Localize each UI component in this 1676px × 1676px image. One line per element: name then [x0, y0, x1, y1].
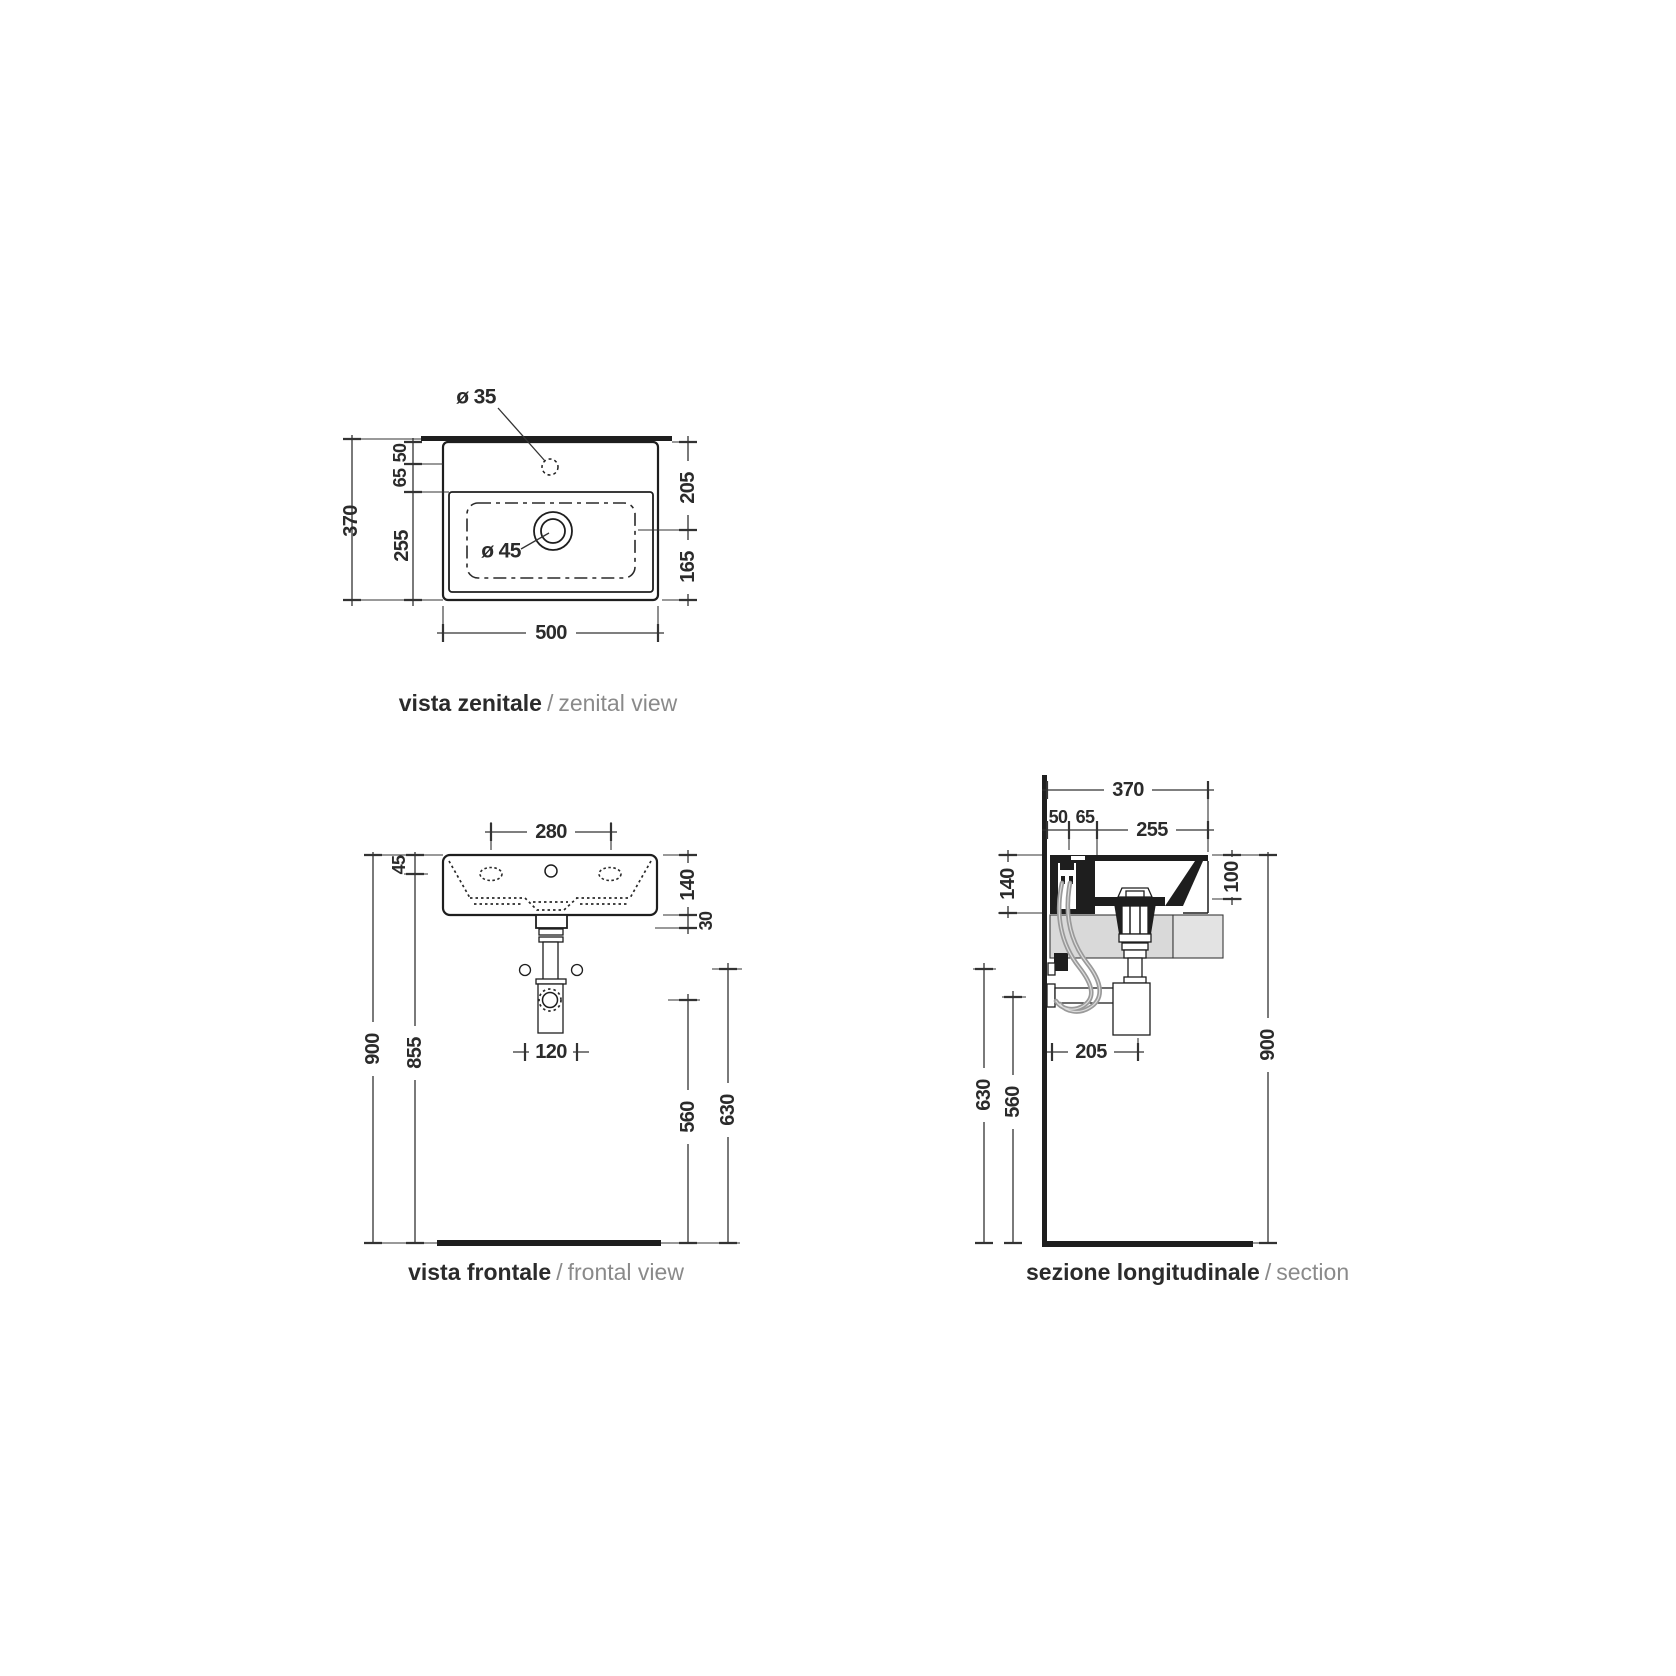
section-view-title: sezione longitudinale/section: [1026, 1259, 1326, 1286]
wall-line-section: [1042, 775, 1047, 1247]
floor-front: [367, 1240, 740, 1246]
dim-faucet-spacing: 280: [485, 821, 617, 850]
section-title-english: section: [1276, 1259, 1349, 1285]
dim-height-total-section: 900: [1253, 852, 1280, 1243]
title-separator: /: [547, 690, 553, 716]
right-fixing-hole: [572, 965, 583, 976]
basin-outline-front: [443, 855, 657, 915]
dim-label-65-section: 65: [1076, 807, 1095, 827]
wall-pipe-flange: [1047, 984, 1055, 1007]
dim-fixing-spacing: 120: [513, 1041, 589, 1063]
bottle-trap: [538, 984, 563, 1033]
dim-section-back-offsets: 50 65 255: [1042, 807, 1214, 855]
dim-zenital-width: 500: [437, 606, 664, 644]
dim-label-50-section: 50: [1049, 807, 1068, 827]
dim-label-140-section: 140: [997, 868, 1019, 900]
dim-label-100: 100: [1221, 861, 1243, 893]
dim-label-500: 500: [535, 622, 567, 644]
technical-drawing: ø 35 ø 45 370 50 65 255: [0, 0, 1676, 1676]
dim-height-drain: 630: [712, 963, 742, 1243]
dim-label-165: 165: [677, 551, 699, 583]
spec-sheet-page: ø 35 ø 45 370 50 65 255: [0, 0, 1676, 1676]
dim-label-30: 30: [696, 911, 716, 930]
cabinet-block: [1173, 915, 1223, 958]
dim-label-280: 280: [535, 821, 567, 843]
left-fixing-hole: [520, 965, 531, 976]
zenital-view-title: vista zenitale/zenital view: [388, 690, 688, 717]
frontal-title-english: frontal view: [568, 1259, 684, 1285]
dim-label-630-section: 630: [973, 1079, 995, 1111]
section-view: 370 50 65 255: [972, 775, 1280, 1247]
dim-label-140: 140: [677, 869, 699, 901]
dim-label-855: 855: [404, 1037, 426, 1069]
title-separator: /: [1265, 1259, 1271, 1285]
dim-basin-height-section: 140: [996, 850, 1042, 918]
dim-label-370-section: 370: [1112, 779, 1144, 801]
dim-height-pipe-section: 560: [1001, 991, 1026, 1243]
dim-label-120: 120: [535, 1041, 567, 1063]
bowl-sloped-wall: [1165, 861, 1203, 906]
right-faucet-hole: [599, 868, 621, 881]
drain-label: ø 45: [481, 540, 522, 563]
wall-drain-pipe: [1055, 988, 1115, 1003]
dim-label-45: 45: [389, 855, 409, 874]
floor-line-section: [1042, 1241, 1253, 1247]
dim-height-total-front: 900: [361, 852, 443, 1243]
dim-label-900: 900: [362, 1033, 384, 1065]
drain-flange: [536, 915, 567, 928]
dim-bowl-depth: 100: [1212, 850, 1276, 905]
dim-height-trap: 560: [668, 994, 700, 1243]
zenital-title-english: zenital view: [558, 690, 677, 716]
wall-line: [421, 436, 672, 441]
drain-tailpipe: [543, 942, 558, 980]
dim-label-255: 255: [391, 530, 413, 562]
bottle-trap-section: [1113, 983, 1150, 1035]
frontal-title-italian: vista frontale: [408, 1259, 551, 1285]
section-title-italian: sezione longitudinale: [1026, 1259, 1260, 1285]
left-faucet-hole: [480, 868, 502, 881]
dim-basin-height-front: 140 30: [655, 850, 716, 934]
dim-label-630: 630: [717, 1094, 739, 1126]
frontal-view: 280 900 45 855: [361, 821, 742, 1246]
dim-label-560-section: 560: [1002, 1086, 1024, 1118]
dim-label-255-section: 255: [1136, 819, 1168, 841]
dim-label-205: 205: [1075, 1041, 1107, 1063]
drain-assembly-front: [520, 915, 583, 1033]
dim-label-50: 50: [390, 443, 410, 462]
dim-rim-and-855: 45 855: [389, 852, 428, 1243]
basin-outline-top: [443, 442, 658, 600]
dim-label-65: 65: [390, 468, 410, 487]
zenital-view: ø 35 ø 45 370 50 65 255: [340, 386, 700, 645]
dim-zenital-back-offsets: 50 65 255: [390, 438, 449, 606]
dim-label-370: 370: [340, 505, 362, 537]
dim-label-560: 560: [677, 1101, 699, 1133]
dim-label-205: 205: [677, 472, 699, 504]
dim-height-valve-section: 630: [972, 963, 996, 1243]
frontal-view-title: vista frontale/frontal view: [396, 1259, 696, 1286]
floor-line: [437, 1240, 661, 1246]
title-separator: /: [556, 1259, 562, 1285]
zenital-title-italian: vista zenitale: [399, 690, 542, 716]
dim-section-depth: 370: [1042, 779, 1214, 852]
faucet-hole-label: ø 35: [456, 386, 497, 409]
dim-trap-offset: 205: [1047, 1038, 1144, 1063]
dim-label-900-section: 900: [1257, 1029, 1279, 1061]
